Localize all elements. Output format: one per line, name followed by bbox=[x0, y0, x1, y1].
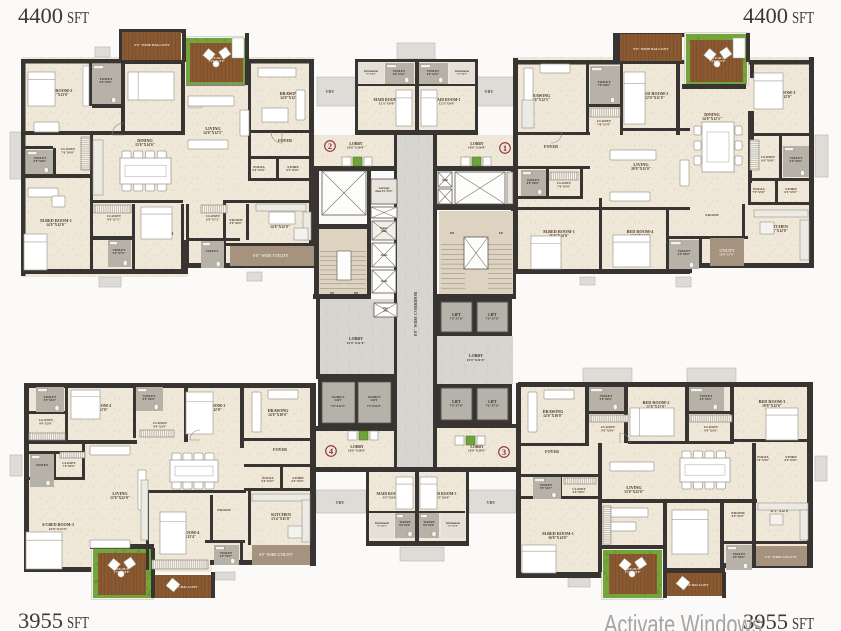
svg-text:6'0"X5'0": 6'0"X5'0" bbox=[732, 514, 745, 518]
svg-text:LIFT: LIFT bbox=[371, 398, 378, 402]
svg-text:9'0"X5'0": 9'0"X5'0" bbox=[39, 421, 53, 425]
svg-text:7'6"X7'6": 7'6"X7'6" bbox=[486, 316, 500, 320]
svg-text:6'0"X4'0": 6'0"X4'0" bbox=[393, 72, 406, 76]
svg-text:FOYER: FOYER bbox=[278, 138, 292, 143]
svg-text:3: 3 bbox=[502, 447, 506, 457]
svg-text:6'0"X9'0": 6'0"X9'0" bbox=[761, 158, 775, 162]
svg-text:7'0"X5'0": 7'0"X5'0" bbox=[448, 525, 459, 528]
svg-text:9'0"X6'0": 9'0"X6'0" bbox=[700, 397, 713, 401]
svg-text:9'0" WIDE BALCONY: 9'0" WIDE BALCONY bbox=[134, 43, 170, 47]
svg-text:14'0"X13'4": 14'0"X13'4" bbox=[49, 527, 68, 531]
svg-text:7'6"X8'0": 7'6"X8'0" bbox=[597, 83, 610, 87]
svg-text:14'0"X10'0": 14'0"X10'0" bbox=[543, 414, 563, 418]
svg-text:15'0"X11'0": 15'0"X11'0" bbox=[347, 341, 366, 345]
svg-text:VRV: VRV bbox=[326, 89, 335, 94]
svg-text:LIFT: LIFT bbox=[335, 398, 342, 402]
svg-text:6'0"X8'0": 6'0"X8'0" bbox=[34, 159, 47, 163]
svg-text:UP: UP bbox=[330, 291, 334, 295]
svg-text:shaft: shaft bbox=[383, 310, 388, 312]
svg-text:SFT: SFT bbox=[67, 613, 89, 631]
svg-text:VRV: VRV bbox=[485, 89, 494, 94]
svg-text:4400: 4400 bbox=[743, 3, 788, 28]
svg-text:FOYER: FOYER bbox=[544, 144, 558, 149]
svg-text:Shaft: Shaft bbox=[442, 179, 448, 182]
svg-text:6'0"X8'0": 6'0"X8'0" bbox=[678, 252, 691, 256]
svg-text:VRV: VRV bbox=[336, 500, 345, 505]
svg-text:7'0"X4'0": 7'0"X4'0" bbox=[457, 73, 468, 76]
svg-text:6'4"X5'0": 6'4"X5'0" bbox=[291, 479, 304, 483]
svg-text:6'0"X7'2": 6'0"X7'2" bbox=[206, 217, 220, 221]
svg-text:6'0"X6'0": 6'0"X6'0" bbox=[230, 221, 243, 225]
svg-text:15'0"X11'0": 15'0"X11'0" bbox=[467, 358, 486, 362]
svg-text:SFT: SFT bbox=[792, 614, 814, 631]
svg-text:14'0"X12'5": 14'0"X12'5" bbox=[203, 131, 223, 135]
svg-text:20'0"X15'0": 20'0"X15'0" bbox=[631, 167, 651, 171]
svg-text:9'0"X6'0": 9'0"X6'0" bbox=[44, 398, 57, 402]
svg-text:6'4"X5'0": 6'4"X5'0" bbox=[286, 168, 299, 172]
svg-text:7'0"X5'0": 7'0"X5'0" bbox=[377, 525, 388, 528]
svg-text:9'5"X9'0": 9'5"X9'0" bbox=[436, 496, 451, 500]
svg-text:16'0"X30'0": 16'0"X30'0" bbox=[347, 146, 365, 150]
svg-text:Shaft: Shaft bbox=[381, 253, 388, 257]
svg-text:10'0"X7'0": 10'0"X7'0" bbox=[719, 252, 735, 256]
svg-text:SFT: SFT bbox=[792, 8, 814, 27]
svg-text:7'6"X9'0": 7'6"X9'0" bbox=[557, 184, 571, 188]
svg-text:16'0"X30'0": 16'0"X30'0" bbox=[468, 449, 486, 453]
svg-text:3955: 3955 bbox=[18, 608, 63, 631]
svg-text:9'0"X5'0": 9'0"X5'0" bbox=[601, 428, 615, 432]
svg-text:10'0"X12'0": 10'0"X12'0" bbox=[762, 404, 782, 408]
svg-text:UP: UP bbox=[499, 231, 503, 235]
svg-text:TOILET: TOILET bbox=[206, 249, 219, 253]
svg-text:6'0"X9'0": 6'0"X9'0" bbox=[220, 554, 233, 558]
svg-text:7'6"X11'0": 7'6"X11'0" bbox=[331, 404, 346, 408]
svg-text:12'0"X11'0": 12'0"X11'0" bbox=[645, 96, 665, 100]
svg-text:7'6"X9'0": 7'6"X9'0" bbox=[61, 150, 75, 154]
svg-text:7'6"X7'6": 7'6"X7'6" bbox=[450, 316, 464, 320]
svg-text:6'0"X8'0": 6'0"X8'0" bbox=[790, 159, 803, 163]
svg-text:16'0"X30'0": 16'0"X30'0" bbox=[468, 146, 486, 150]
svg-text:2: 2 bbox=[328, 141, 332, 151]
svg-text:7'6"X11'0": 7'6"X11'0" bbox=[367, 404, 382, 408]
svg-text:9'0"X6'0": 9'0"X6'0" bbox=[540, 486, 553, 490]
svg-text:DN: DN bbox=[354, 291, 359, 295]
svg-text:14'0"X12'5": 14'0"X12'5" bbox=[702, 117, 722, 121]
svg-text:8'0" WIDE CORRIDOR: 8'0" WIDE CORRIDOR bbox=[413, 291, 418, 337]
svg-text:VRV: VRV bbox=[487, 500, 496, 505]
svg-text:6'0"X5'0": 6'0"X5'0" bbox=[261, 479, 274, 483]
svg-text:9'0"X6'0": 9'0"X6'0" bbox=[143, 397, 156, 401]
svg-text:15'0"X14'6": 15'0"X14'6" bbox=[135, 143, 155, 147]
svg-text:7'0"X4'0": 7'0"X4'0" bbox=[366, 73, 377, 76]
svg-text:SFT: SFT bbox=[67, 8, 89, 27]
svg-text:14'0"X12'0": 14'0"X12'0" bbox=[270, 225, 290, 229]
svg-text:4400: 4400 bbox=[18, 3, 63, 28]
svg-text:DN: DN bbox=[450, 231, 455, 235]
svg-text:6'0" WIDE UTILITY: 6'0" WIDE UTILITY bbox=[253, 254, 289, 258]
svg-text:9'0"X7'0": 9'0"X7'0" bbox=[113, 251, 126, 255]
svg-text:9'5"X9'0": 9'5"X9'0" bbox=[383, 496, 398, 500]
svg-text:7'6"X7'0": 7'6"X7'0" bbox=[597, 122, 611, 126]
svg-text:6'0"X6'0": 6'0"X6'0" bbox=[573, 490, 586, 494]
svg-text:6'0"X4'0": 6'0"X4'0" bbox=[423, 524, 435, 527]
svg-text:Activate Windows: Activate Windows bbox=[604, 609, 762, 631]
svg-text:chute 5'0"X5'0": chute 5'0"X5'0" bbox=[375, 190, 393, 193]
svg-text:P.ROOM: P.ROOM bbox=[705, 213, 719, 217]
svg-text:Shaft: Shaft bbox=[381, 279, 388, 283]
svg-text:6'4"X5'0": 6'4"X5'0" bbox=[784, 190, 797, 194]
svg-text:7'6"X9'0": 7'6"X9'0" bbox=[63, 464, 76, 468]
svg-text:1: 1 bbox=[503, 143, 507, 153]
svg-text:6'0"X4'0": 6'0"X4'0" bbox=[399, 524, 411, 527]
svg-text:7'0"X5'0": 7'0"X5'0" bbox=[756, 458, 769, 462]
svg-text:13'0"X22'0": 13'0"X22'0" bbox=[624, 490, 644, 494]
svg-text:6'0"X5'0": 6'0"X5'0" bbox=[252, 168, 265, 172]
svg-text:12'5"X9'0": 12'5"X9'0" bbox=[439, 102, 455, 106]
svg-text:6'0"X5'0": 6'0"X5'0" bbox=[784, 458, 797, 462]
svg-text:13'4"X11'0": 13'4"X11'0" bbox=[271, 517, 291, 521]
svg-text:FOYER: FOYER bbox=[545, 449, 559, 454]
svg-text:9'0"X5'0": 9'0"X5'0" bbox=[704, 428, 718, 432]
svg-text:16'0"X30'0": 16'0"X30'0" bbox=[348, 449, 366, 453]
svg-text:13'0"X22'0": 13'0"X22'0" bbox=[110, 496, 130, 500]
svg-text:14'0"X10'0": 14'0"X10'0" bbox=[268, 413, 288, 417]
svg-text:9'0"X6'0": 9'0"X6'0" bbox=[600, 397, 613, 401]
svg-text:TOILET: TOILET bbox=[36, 463, 49, 467]
svg-text:6'0"X8'0": 6'0"X8'0" bbox=[527, 181, 540, 185]
svg-text:6'0" WIDE UTILITY: 6'0" WIDE UTILITY bbox=[765, 555, 797, 559]
svg-text:6'0" WIDE UTILITY: 6'0" WIDE UTILITY bbox=[259, 553, 293, 557]
svg-text:6'0"X4'0": 6'0"X4'0" bbox=[427, 72, 440, 76]
svg-text:7'0"X5'0": 7'0"X5'0" bbox=[752, 190, 765, 194]
svg-text:14'0"X12'0": 14'0"X12'0" bbox=[46, 223, 66, 227]
svg-text:Shaft: Shaft bbox=[381, 230, 387, 233]
svg-text:7'6"X7'6": 7'6"X7'6" bbox=[486, 403, 500, 407]
svg-text:P.ROOM: P.ROOM bbox=[217, 508, 231, 512]
svg-text:FOYER: FOYER bbox=[273, 447, 287, 452]
svg-text:9'0"X7'2": 9'0"X7'2" bbox=[107, 217, 121, 221]
svg-text:6'0"X8'0": 6'0"X8'0" bbox=[99, 80, 112, 84]
svg-text:7'6"X7'6": 7'6"X7'6" bbox=[450, 403, 464, 407]
svg-text:9'0"X5'0": 9'0"X5'0" bbox=[153, 424, 167, 428]
svg-text:6'0"X8'0": 6'0"X8'0" bbox=[733, 555, 746, 559]
svg-text:9'0" WIDE BALCONY: 9'0" WIDE BALCONY bbox=[633, 47, 669, 51]
svg-text:12'5"X9'0": 12'5"X9'0" bbox=[379, 102, 395, 106]
svg-text:16'0"X14'0": 16'0"X14'0" bbox=[548, 536, 568, 540]
